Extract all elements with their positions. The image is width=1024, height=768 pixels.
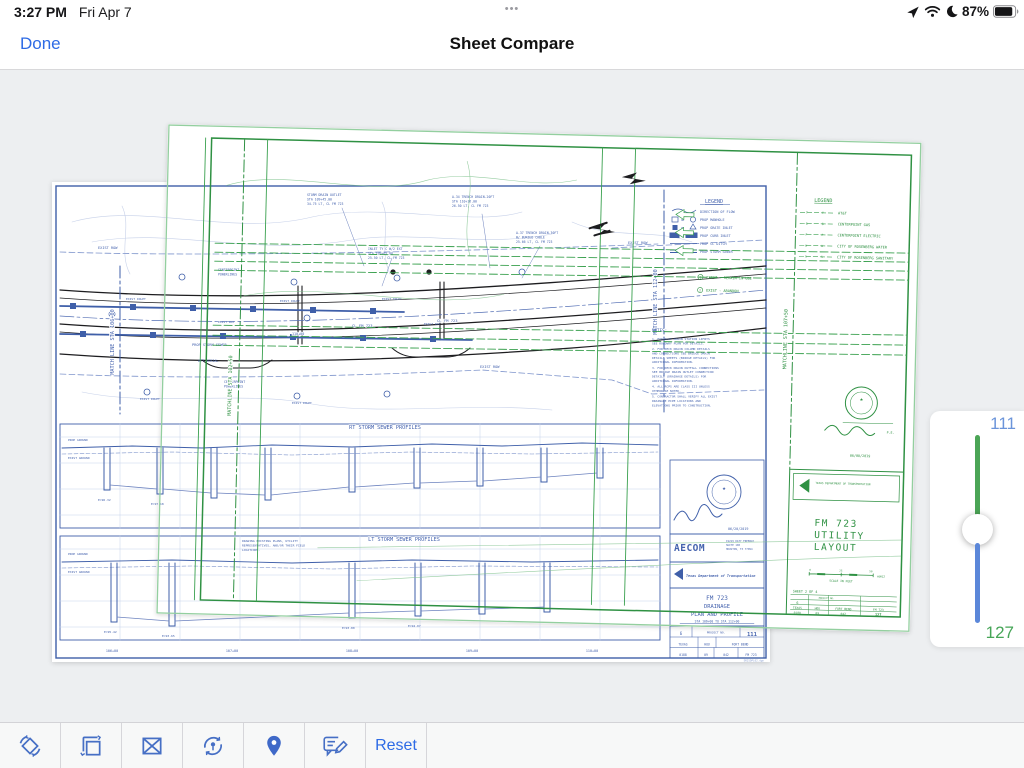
green-matchline-left-label: MATCHLINE STA 102+50 [227,355,234,415]
exist-ground-label: EXIST GROUND [68,456,90,460]
annotate-button[interactable] [305,723,366,768]
scale-label: SCALE IN FEET [829,579,853,584]
station-tick-label: 109+00 [466,649,478,653]
dist-value: HOU [704,643,710,647]
slider-thumb[interactable] [962,514,993,545]
note-number: 1 [699,275,701,279]
rotate-sheet-button[interactable] [0,723,61,768]
location-pin-icon [263,733,285,759]
annotation-note-icon [321,733,349,759]
scale-tick: 25 [839,569,843,573]
project-no-label: PROJECT NO. [707,631,726,635]
wifi-icon [924,5,941,18]
matchline-left-label: MATCH LINE STA 106+00 [110,309,116,375]
bottom-toolbar: Reset [0,722,1024,768]
scale-tick: 0 [809,568,811,572]
station-tick-label: 107+00 [226,649,238,653]
scale-horiz: HORIZ [877,574,885,578]
pages-overlay-button[interactable] [61,723,122,768]
fed-value: 6 [680,631,683,636]
dist-value: HOU [815,606,821,610]
battery-icon [993,5,1019,18]
seal-date: 06/08/2019 [850,454,871,458]
job-value: 042 [723,653,729,657]
green-matchline-right-line [790,152,798,469]
scale-tick: 50 [869,569,873,573]
prop-ground-label: PROP GROUND [68,438,88,442]
compare-canvas[interactable]: MATCH LINE STA 106+00 MATCH LINE STA 112… [0,70,1024,768]
green-matchline-left-line [233,139,244,601]
legend-item: CENTERPOINT GAS [838,222,871,227]
green-verticals [194,138,635,610]
exist-ground-label: EXIST GROUND [68,570,90,574]
stacked-sheets-icon [78,733,104,759]
green-legend-symbol-lines [799,212,834,257]
sheet-title: FM 723 [814,518,858,530]
elevation-label: E=93.80 [342,626,355,630]
green-sheet-drawing: MATCHLINE STA 102+50 MATCHLINE STA 107+5… [156,124,922,632]
green-inner-border [200,138,911,617]
location-arrow-icon [906,5,920,19]
job-value: 042 [840,612,846,616]
rotate-diamond-icon [17,733,43,759]
station-tick-label: 110+00 [586,649,598,653]
legend-item: CITY OF ROSENBERG SANITARY [837,255,894,260]
prop-ground-label: PROP GROUND [68,552,88,556]
reset-label: Reset [375,737,417,755]
sheet-of-label: SHEET 2 OF 4 [793,589,818,594]
exist-inlet-label: EXIST INLET [140,397,160,401]
compare-slider-panel: 111 127 [930,411,1024,647]
elevation-label: E=94.07 [408,624,421,628]
elevation-label: E=93.65 [162,634,175,638]
slider-track-green[interactable] [975,435,980,517]
cont-value: 0188 [794,611,802,615]
page-title: Sheet Compare [0,34,1024,54]
sheet-number: 111 [747,632,758,638]
exist-inlet-label: EXIST INLET [126,297,146,301]
sheet-compare-screen: 3:27 PM Fri Apr 7 ••• 87% Done Sheet Com… [0,0,1024,768]
moon-icon [945,5,958,18]
bottom-sheet-number: 127 [986,623,1014,643]
county-value: FORT BEND [732,643,749,647]
sect-value: 09 [704,653,708,657]
north-arrow-mark [622,172,646,185]
elevation-label: E=95.42 [104,630,117,634]
county-value: FORT BEND [835,607,852,611]
difference-mode-button[interactable] [122,723,183,768]
top-sheet-number: 111 [990,414,1016,434]
sheet-title: UTILITY [814,530,865,542]
legend-item: CENTERPOINT ELECTRIC [837,233,880,238]
slider-track-blue[interactable] [975,543,980,623]
exist-row-label: EXIST ROW [98,246,118,250]
sync-pin-icon [200,733,226,759]
fed-value: 6 [796,601,798,605]
station-tick-label: 108+00 [346,649,358,653]
sync-alignment-button[interactable] [183,723,244,768]
compare-mark [589,222,609,235]
flow-arrows [675,209,694,255]
station-tick-label: 106+00 [106,649,118,653]
green-legend-title: LEGEND [814,198,832,204]
state-value: TEXAS [678,643,687,647]
note-number: 2 [699,288,701,292]
green-note: EXIST - ABANDON [706,289,739,294]
green-outer-border [157,125,921,631]
green-seal [825,386,894,436]
status-bar: 3:27 PM Fri Apr 7 ••• 87% [0,0,1024,24]
file-name: DR25DPL02.dgn [744,659,765,663]
hwy-value: FM 723 [745,653,756,657]
reset-button[interactable]: Reset [366,723,427,768]
elevation-label: E=96.32 [98,498,111,502]
battery-percent: 87% [962,4,989,19]
sheet-title: LAYOUT [814,542,858,554]
txdot-label: TEXAS DEPARTMENT OF TRANSPORTATION [815,481,870,486]
sect-value: 09 [815,611,819,615]
green-note: EXIST - REMAIN IN USE [706,276,752,281]
project-no-label: PROJECT NO. [819,597,835,600]
state-value: TEXAS [793,606,802,610]
green-matchline-right-label: MATCHLINE STA 107+50 [782,309,789,369]
status-handle-dots: ••• [0,3,1024,15]
seal-star: ★ [860,396,864,403]
legend-item: AT&T [838,211,848,215]
legend-item: CITY OF ROSENBERG WATER [837,244,888,249]
pe-label: P.E. [887,431,895,435]
sheet-number: 127 [875,613,882,617]
crossed-box-icon [139,733,165,759]
nav-bar: Done Sheet Compare [0,24,1024,70]
location-pin-button[interactable] [244,723,305,768]
cont-value: 0188 [679,653,687,657]
hwy-value: FM 723 [873,608,884,612]
